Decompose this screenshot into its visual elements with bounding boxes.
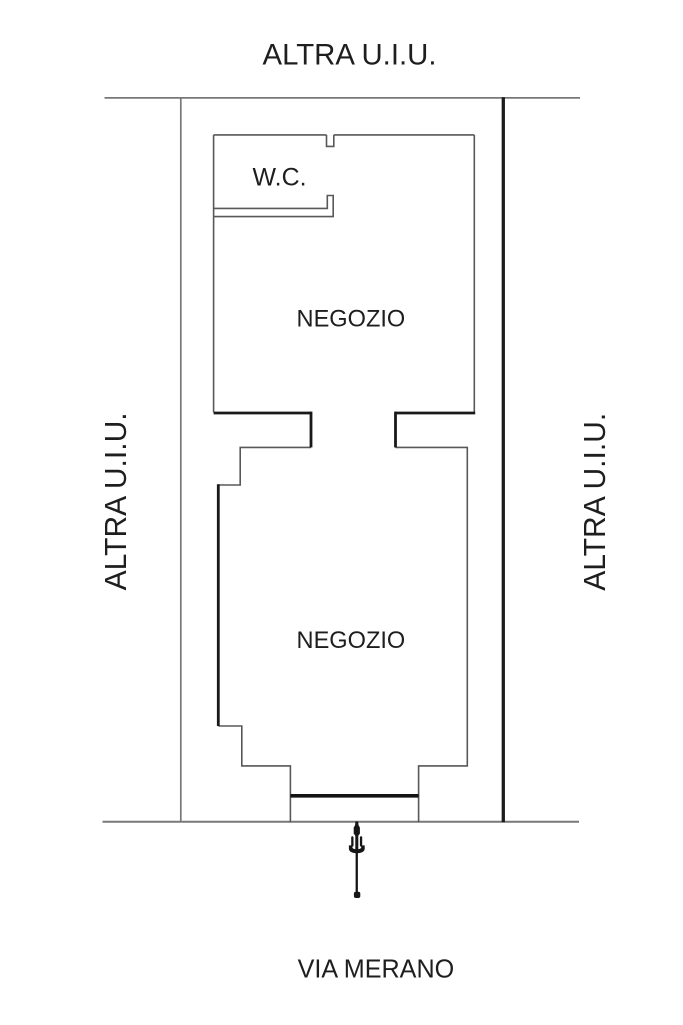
svg-text:VIA MERANO: VIA MERANO xyxy=(298,953,455,983)
svg-text:W.C.: W.C. xyxy=(253,164,307,192)
svg-text:ALTRA U.I.U.: ALTRA U.I.U. xyxy=(263,39,437,72)
svg-text:NEGOZIO: NEGOZIO xyxy=(297,305,406,332)
svg-text:NEGOZIO: NEGOZIO xyxy=(297,627,406,654)
svg-text:ALTRA U.I.U.: ALTRA U.I.U. xyxy=(577,413,612,591)
svg-text:ALTRA U.I.U.: ALTRA U.I.U. xyxy=(98,412,133,590)
